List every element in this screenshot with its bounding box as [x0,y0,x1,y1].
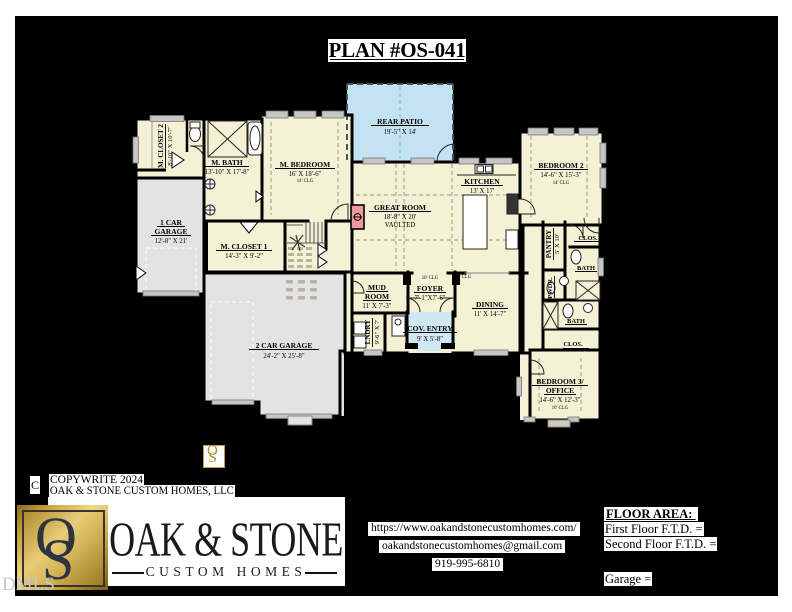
svg-text:FOYER: FOYER [417,284,444,293]
svg-text:LNDRY: LNDRY [364,320,372,345]
svg-text:PANTRY: PANTRY [545,230,553,258]
svg-text:19'-5" X 14': 19'-5" X 14' [384,129,417,136]
svg-text:9'-6" X 7': 9'-6" X 7' [374,320,381,345]
svg-text:KITCHEN: KITCHEN [464,177,500,186]
svg-text:10' CLG: 10' CLG [552,406,569,411]
svg-text:VAULTED: VAULTED [385,222,416,229]
svg-text:PWDR.: PWDR. [547,277,554,299]
svg-text:ROOM: ROOM [365,292,389,301]
svg-text:BEDROOM 2: BEDROOM 2 [538,161,583,170]
svg-text:CLOS.: CLOS. [563,341,583,348]
svg-text:9' X 5'-8": 9' X 5'-8" [417,336,443,343]
svg-text:COV. ENTRY: COV. ENTRY [407,324,453,333]
svg-text:11' X 14'-7": 11' X 14'-7" [474,311,507,318]
svg-text:14'-6" X 12'-3": 14'-6" X 12'-3" [539,397,580,404]
svg-text:14'-6" X 15'-3": 14'-6" X 15'-3" [540,172,581,179]
svg-text:8'-10" X 10'-7": 8'-10" X 10'-7" [167,126,174,166]
svg-text:REAR PATIO: REAR PATIO [377,117,423,126]
svg-text:BATH: BATH [577,265,595,272]
svg-text:DINING: DINING [476,300,504,309]
svg-text:2 CAR GARAGE: 2 CAR GARAGE [256,341,313,350]
svg-text:5' X 10': 5' X 10' [554,234,561,254]
svg-text:12'-8" X 21': 12'-8" X 21' [155,238,188,245]
svg-text:1 CAR: 1 CAR [160,218,182,227]
svg-text:11' X 7'-3": 11' X 7'-3" [362,303,391,310]
svg-text:14' CLG: 14' CLG [297,179,314,184]
svg-text:M. CLOSET 1: M. CLOSET 1 [221,242,268,251]
svg-text:24'-2" X 25'-8": 24'-2" X 25'-8" [263,353,304,360]
svg-text:14' CLG: 14' CLG [553,181,570,186]
svg-text:16' X 18'-6": 16' X 18'-6" [289,171,322,178]
svg-text:GARAGE: GARAGE [155,227,188,236]
svg-text:BATH: BATH [567,318,585,325]
svg-text:14'-3" X 9'-2": 14'-3" X 9'-2" [225,253,263,260]
svg-text:10' CLG: 10' CLG [455,275,472,280]
svg-text:18'-8" X 20': 18'-8" X 20' [384,214,417,221]
svg-text:CLOS.: CLOS. [578,235,598,242]
svg-text:7'-1"X7'-6": 7'-1"X7'-6" [414,295,445,302]
svg-text:M. BEDROOM: M. BEDROOM [280,160,330,169]
svg-text:M. BATH: M. BATH [211,158,243,167]
svg-text:GREAT ROOM: GREAT ROOM [374,203,426,212]
svg-text:M. CLOSET 2: M. CLOSET 2 [157,124,165,168]
svg-text:13'-10" X 17'-8": 13'-10" X 17'-8" [205,169,250,176]
svg-text:MUD: MUD [368,283,386,292]
svg-text:10' CLG: 10' CLG [422,276,439,281]
svg-text:OFFICE: OFFICE [546,386,574,395]
svg-text:BEDROOM 3/: BEDROOM 3/ [536,377,584,386]
svg-text:13' X 17': 13' X 17' [470,188,494,195]
